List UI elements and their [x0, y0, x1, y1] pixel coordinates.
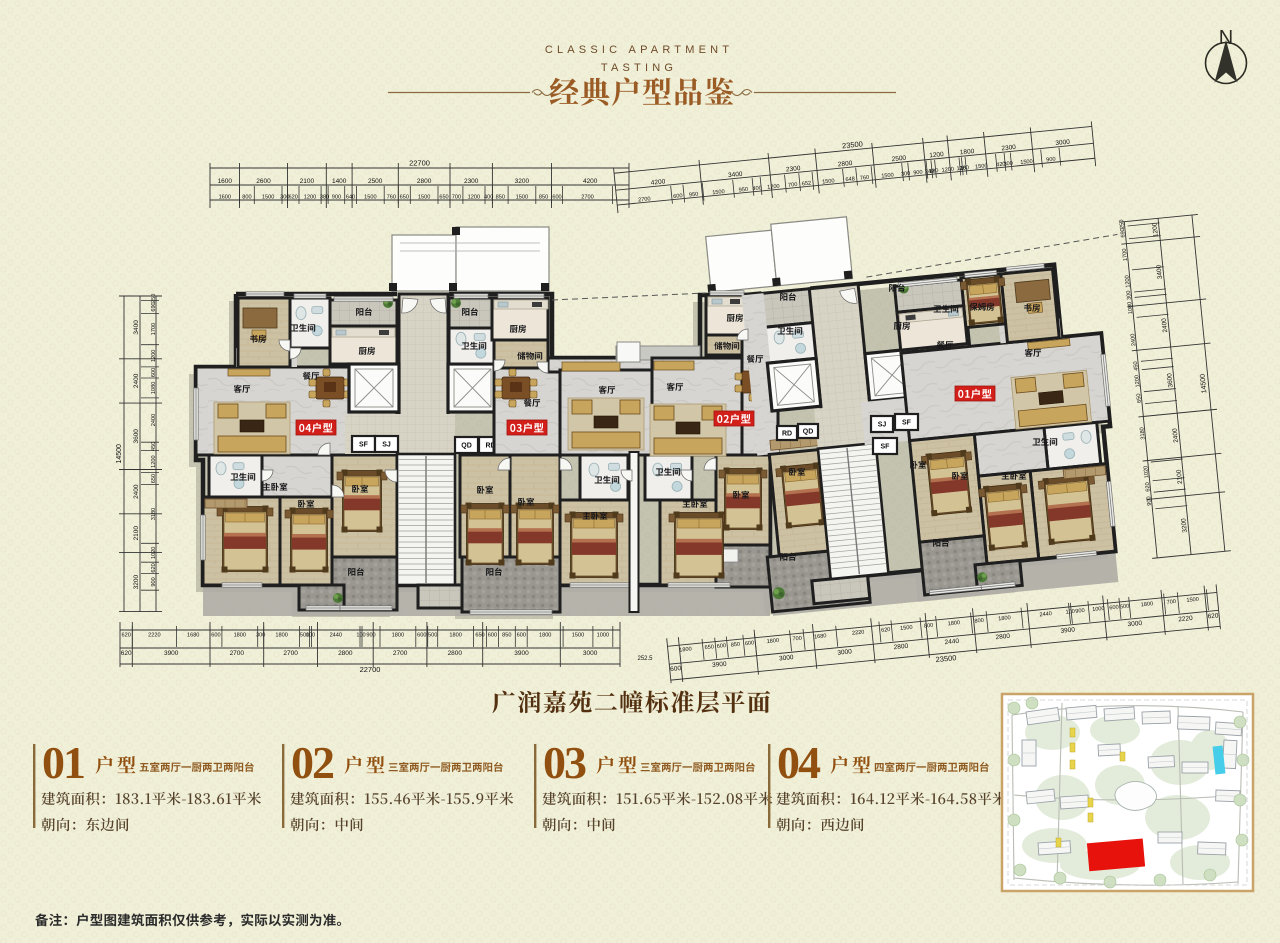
svg-text:300: 300 [256, 633, 265, 639]
svg-text:850: 850 [502, 633, 511, 639]
svg-text:SF: SF [902, 420, 912, 427]
svg-text:500: 500 [428, 633, 437, 639]
svg-text:1500: 1500 [516, 195, 528, 201]
svg-text:RD: RD [782, 431, 792, 438]
svg-text:400: 400 [752, 185, 762, 192]
svg-text:1500: 1500 [572, 633, 584, 639]
svg-text:01: 01 [42, 737, 84, 788]
svg-text:600: 600 [552, 195, 561, 201]
svg-text:2400: 2400 [133, 373, 140, 388]
svg-text:1000: 1000 [597, 633, 609, 639]
svg-text:600: 600 [673, 193, 683, 200]
svg-text:1500: 1500 [262, 195, 274, 201]
svg-text:3180: 3180 [151, 508, 157, 520]
svg-text:600: 600 [417, 633, 426, 639]
svg-text:1400: 1400 [332, 178, 347, 185]
svg-text:400: 400 [484, 195, 493, 201]
svg-text:03: 03 [543, 737, 586, 788]
svg-text:2300: 2300 [1001, 144, 1016, 152]
svg-text:1500: 1500 [975, 163, 988, 170]
svg-text:1200: 1200 [151, 350, 157, 362]
svg-text:1680: 1680 [814, 633, 827, 640]
svg-text:640: 640 [346, 195, 355, 201]
svg-text:1800: 1800 [234, 633, 246, 639]
svg-text:1800: 1800 [766, 638, 779, 645]
svg-text:CLASSIC APARTMENT: CLASSIC APARTMENT [545, 44, 733, 56]
svg-text:2800: 2800 [448, 650, 463, 657]
svg-text:800: 800 [924, 623, 934, 630]
svg-text:100: 100 [356, 633, 365, 639]
svg-text:1800: 1800 [392, 633, 404, 639]
svg-text:2500: 2500 [891, 155, 906, 163]
svg-text:760: 760 [860, 175, 870, 182]
svg-text:1800: 1800 [449, 633, 461, 639]
svg-text:620: 620 [151, 563, 157, 572]
svg-text:TASTING: TASTING [601, 62, 677, 74]
svg-text:900: 900 [1146, 496, 1153, 506]
svg-text:2220: 2220 [852, 630, 865, 637]
svg-text:1800: 1800 [1141, 601, 1154, 608]
svg-text:3900: 3900 [1060, 626, 1075, 634]
svg-text:1000: 1000 [1092, 606, 1105, 613]
svg-text:2800: 2800 [893, 643, 908, 651]
svg-text:500: 500 [1120, 604, 1130, 611]
svg-text:2700: 2700 [581, 195, 593, 201]
svg-text:450: 450 [1133, 361, 1140, 371]
svg-text:900: 900 [1046, 157, 1056, 164]
svg-text:04: 04 [777, 737, 821, 788]
svg-text:600: 600 [151, 368, 157, 377]
svg-text:180: 180 [959, 165, 969, 172]
svg-text:1200: 1200 [468, 195, 480, 201]
svg-text:2700: 2700 [230, 650, 245, 657]
svg-text:1800: 1800 [539, 633, 551, 639]
svg-text:2440: 2440 [330, 633, 342, 639]
svg-text:1020: 1020 [1143, 465, 1150, 478]
svg-text:900: 900 [366, 633, 375, 639]
svg-text:180: 180 [929, 168, 939, 175]
svg-text:1020: 1020 [151, 547, 157, 559]
svg-text:600: 600 [717, 643, 727, 650]
svg-text:690: 690 [151, 302, 157, 311]
svg-text:1500: 1500 [900, 625, 913, 632]
svg-text:3180: 3180 [1139, 427, 1146, 440]
svg-text:700: 700 [1166, 599, 1176, 606]
svg-text:3600: 3600 [1166, 372, 1174, 387]
svg-text:900: 900 [151, 577, 157, 586]
svg-text:2100: 2100 [300, 178, 315, 185]
svg-text:2440: 2440 [1039, 611, 1052, 618]
svg-text:2800: 2800 [995, 633, 1010, 641]
svg-text:2400: 2400 [1161, 317, 1169, 332]
svg-text:1080: 1080 [1127, 301, 1134, 314]
svg-text:3000: 3000 [1055, 139, 1070, 147]
svg-text:3000: 3000 [837, 648, 852, 656]
svg-text:100: 100 [1065, 609, 1075, 616]
svg-text:SJ: SJ [382, 442, 391, 449]
svg-text:2700: 2700 [283, 650, 298, 657]
svg-text:300: 300 [1003, 161, 1013, 168]
svg-text:3900: 3900 [712, 661, 727, 669]
svg-text:620: 620 [121, 650, 132, 657]
svg-text:3900: 3900 [514, 650, 529, 657]
svg-text:1200: 1200 [941, 167, 954, 174]
svg-text:900: 900 [913, 170, 923, 177]
svg-text:4200: 4200 [583, 178, 598, 185]
svg-text:300: 300 [901, 171, 911, 178]
svg-text:650: 650 [400, 195, 409, 201]
svg-text:SF: SF [359, 442, 369, 449]
svg-text:650: 650 [475, 633, 484, 639]
svg-text:800: 800 [242, 195, 251, 201]
svg-text:600: 600 [670, 665, 682, 673]
svg-text:380: 380 [320, 195, 329, 201]
svg-text:600: 600 [211, 633, 220, 639]
svg-text:650: 650 [151, 474, 157, 483]
svg-text:3200: 3200 [133, 574, 140, 589]
svg-text:2300: 2300 [464, 178, 479, 185]
svg-text:2300: 2300 [786, 165, 801, 173]
svg-text:650: 650 [1136, 393, 1143, 403]
svg-text:22700: 22700 [409, 159, 430, 168]
svg-text:252.5: 252.5 [637, 656, 653, 662]
svg-text:2440: 2440 [944, 638, 959, 646]
svg-text:3400: 3400 [133, 320, 140, 335]
svg-text:1680: 1680 [187, 633, 199, 639]
svg-text:600: 600 [517, 633, 526, 639]
svg-text:2400: 2400 [133, 484, 140, 499]
svg-text:850: 850 [731, 642, 741, 649]
svg-text:02: 02 [291, 737, 334, 788]
svg-text:2600: 2600 [256, 178, 271, 185]
svg-text:700: 700 [792, 636, 802, 643]
svg-text:900: 900 [1075, 608, 1085, 615]
svg-text:1500: 1500 [364, 195, 376, 201]
svg-text:22700: 22700 [360, 665, 381, 674]
svg-text:620: 620 [1207, 612, 1219, 620]
svg-text:620: 620 [881, 627, 891, 634]
svg-text:2800: 2800 [417, 178, 432, 185]
svg-text:300: 300 [1126, 290, 1133, 300]
svg-text:650: 650 [704, 644, 714, 651]
svg-text:3000: 3000 [779, 654, 794, 662]
svg-text:1500: 1500 [881, 172, 894, 179]
svg-text:3000: 3000 [583, 650, 598, 657]
svg-text:1200: 1200 [151, 455, 157, 467]
svg-text:1600: 1600 [218, 178, 233, 185]
svg-text:3600: 3600 [133, 429, 140, 444]
svg-text:2400: 2400 [1130, 333, 1137, 346]
svg-text:250: 250 [1119, 219, 1126, 229]
svg-text:QD: QD [803, 429, 814, 436]
svg-text:850: 850 [496, 195, 505, 201]
svg-text:3900: 3900 [164, 650, 179, 657]
svg-text:100: 100 [306, 633, 315, 639]
svg-text:4200: 4200 [651, 178, 666, 186]
svg-text:600: 600 [1109, 605, 1119, 612]
svg-text:652: 652 [802, 181, 812, 188]
svg-text:1200: 1200 [1134, 375, 1141, 388]
svg-text:850: 850 [539, 195, 548, 201]
svg-text:2100: 2100 [1176, 469, 1184, 484]
svg-text:900: 900 [332, 195, 341, 201]
svg-text:1500: 1500 [712, 189, 725, 196]
svg-text:690: 690 [1120, 228, 1127, 238]
svg-text:620: 620 [122, 633, 131, 639]
svg-text:620: 620 [289, 195, 298, 201]
svg-text:1800: 1800 [679, 646, 692, 653]
svg-text:760: 760 [387, 195, 396, 201]
svg-text:2700: 2700 [393, 650, 408, 657]
svg-text:950: 950 [689, 192, 699, 199]
svg-text:1500: 1500 [1020, 159, 1033, 166]
svg-text:3400: 3400 [1156, 264, 1164, 279]
svg-text:3200: 3200 [515, 178, 530, 185]
svg-text:2220: 2220 [1178, 615, 1193, 623]
svg-text:1800: 1800 [960, 148, 975, 156]
svg-text:1500: 1500 [418, 195, 430, 201]
svg-text:1200: 1200 [929, 151, 944, 159]
svg-text:1700: 1700 [151, 323, 157, 335]
svg-text:2100: 2100 [133, 526, 140, 541]
svg-text:700: 700 [788, 182, 798, 189]
svg-text:2400: 2400 [151, 414, 157, 426]
svg-text:2220: 2220 [148, 633, 160, 639]
svg-text:1500: 1500 [822, 178, 835, 185]
svg-text:1200: 1200 [1124, 275, 1131, 288]
svg-text:450: 450 [151, 442, 157, 451]
svg-text:1800: 1800 [275, 633, 287, 639]
svg-text:3200: 3200 [1180, 518, 1188, 533]
svg-text:1080: 1080 [151, 382, 157, 394]
svg-text:2800: 2800 [338, 650, 353, 657]
svg-text:SJ: SJ [878, 422, 887, 429]
svg-text:3400: 3400 [728, 171, 743, 179]
svg-text:1700: 1700 [1122, 248, 1129, 261]
svg-text:600: 600 [745, 640, 755, 647]
svg-text:250: 250 [151, 294, 157, 303]
svg-text:SF: SF [881, 444, 891, 451]
svg-text:2500: 2500 [368, 178, 383, 185]
svg-text:650: 650 [439, 195, 448, 201]
svg-text:1200: 1200 [1151, 222, 1159, 237]
svg-text:600: 600 [488, 633, 497, 639]
svg-text:3000: 3000 [1127, 620, 1142, 628]
svg-text:648: 648 [845, 176, 855, 183]
svg-text:QD: QD [461, 443, 472, 450]
svg-text:1200: 1200 [304, 195, 316, 201]
svg-text:800: 800 [974, 618, 984, 625]
svg-text:2700: 2700 [638, 196, 651, 203]
svg-text:1600: 1600 [219, 195, 231, 201]
svg-text:1200: 1200 [767, 184, 780, 191]
svg-text:14500: 14500 [116, 444, 123, 464]
svg-text:950: 950 [739, 187, 749, 194]
svg-text:1500: 1500 [1186, 597, 1199, 604]
svg-text:700: 700 [452, 195, 461, 201]
svg-text:620: 620 [1145, 482, 1152, 492]
svg-text:1800: 1800 [998, 615, 1011, 622]
svg-text:1800: 1800 [947, 620, 960, 627]
svg-text:2800: 2800 [838, 160, 853, 168]
svg-text:2400: 2400 [1172, 428, 1180, 443]
